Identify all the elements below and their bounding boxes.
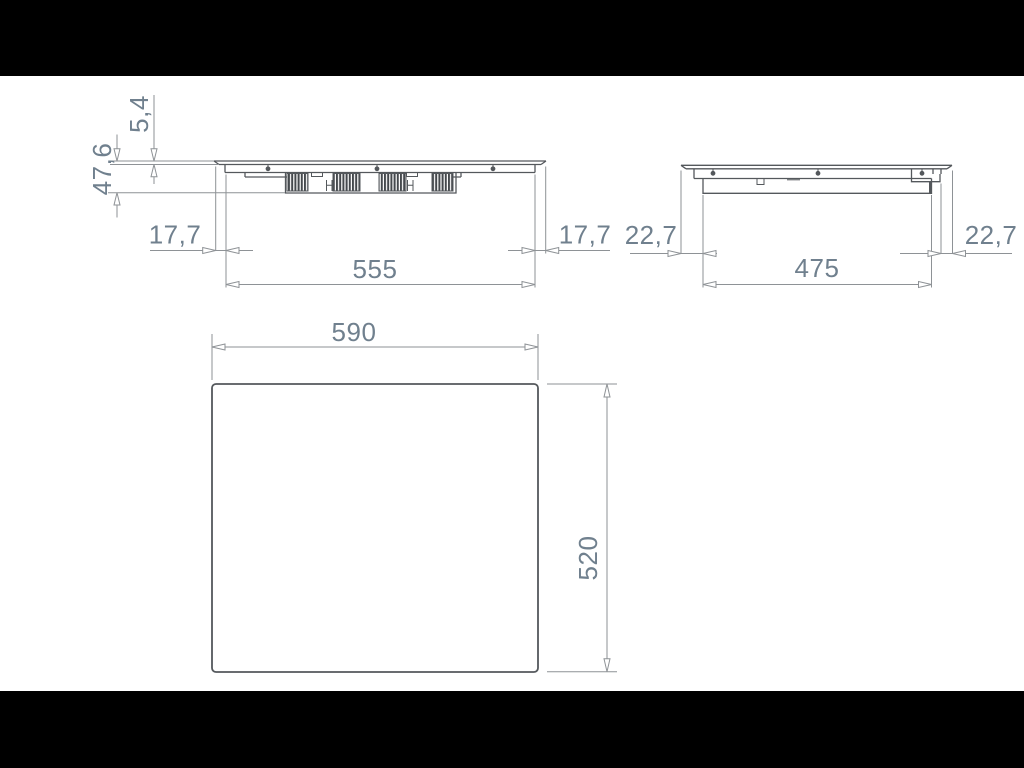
plan-glass-outline — [212, 384, 538, 672]
dim-label-glass-thickness: 5,4 — [124, 95, 154, 133]
front-screw-dot — [266, 166, 271, 171]
letterbox-bottom — [0, 691, 1024, 768]
letterbox-top — [0, 0, 1024, 76]
side-screw-dot — [711, 171, 716, 176]
dim-label-overall-depth: 520 — [573, 536, 603, 581]
side-screw-dot — [816, 171, 821, 176]
letterboxed-stage: 5,4 47,6 17,7 17,7 555 — [0, 0, 1024, 768]
side-screw-dot — [920, 171, 925, 176]
front-screw-dot — [375, 166, 380, 171]
dim-label-side-overhang-right: 22,7 — [965, 220, 1018, 250]
dim-label-front-overhang-left: 17,7 — [149, 220, 202, 250]
fin-block — [379, 174, 406, 192]
front-screw-dot — [491, 166, 496, 171]
dim-label-overall-width: 590 — [332, 317, 377, 347]
technical-drawing: 5,4 47,6 17,7 17,7 555 — [0, 0, 1024, 768]
fin-block — [432, 174, 453, 192]
dim-label-front-overhang-right: 17,7 — [559, 220, 612, 250]
fin-block — [287, 174, 308, 192]
dim-label-body-width: 555 — [353, 254, 398, 284]
fin-block — [333, 174, 360, 192]
dim-label-body-depth: 475 — [795, 253, 840, 283]
dim-label-side-overhang-left: 22,7 — [625, 220, 678, 250]
dim-label-overall-height: 47,6 — [87, 143, 117, 196]
